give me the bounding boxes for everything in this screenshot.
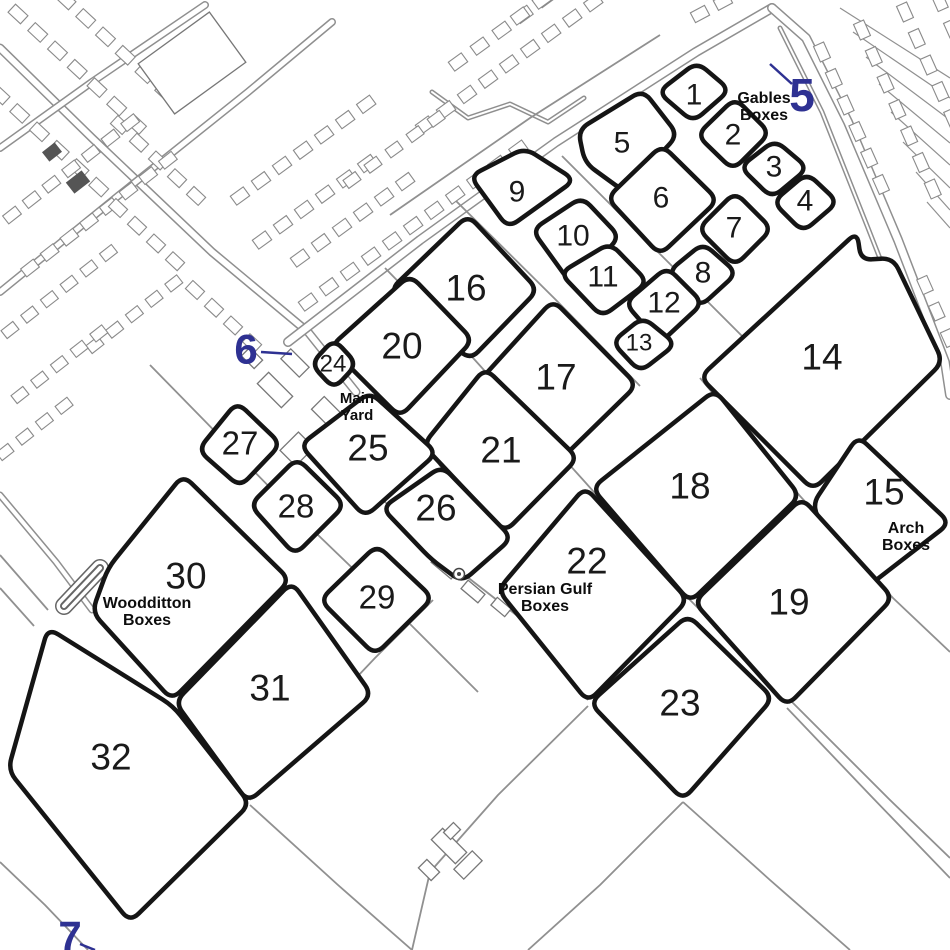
label-arch-boxes-line1: Arch (888, 520, 924, 537)
paddock-31-number: 31 (249, 668, 290, 709)
label-woodditton-boxes-line2: Boxes (123, 612, 171, 629)
paddock-21-number: 21 (480, 430, 521, 471)
label-arch-boxes-line2: Boxes (882, 537, 930, 554)
paddock-13-number: 13 (626, 330, 653, 357)
label-woodditton-boxes-line1: Woodditton (103, 595, 192, 612)
paddock-9-number: 9 (509, 176, 526, 209)
paddock-23-number: 23 (659, 683, 700, 724)
map-root: 1234567891011121314151617181920212223242… (0, 0, 950, 950)
blue-marker-6: 6 (234, 326, 257, 373)
paddock-15-number: 15 (863, 472, 904, 513)
paddock-1-number: 1 (686, 79, 703, 112)
paddock-27-number: 27 (222, 425, 259, 462)
label-arch-boxes: ArchBoxes (882, 520, 930, 554)
paddock-18-number: 18 (669, 466, 710, 507)
label-main-yard-line2: Yard (341, 407, 374, 424)
paddock-32-number: 32 (90, 737, 131, 778)
label-persian-gulf-boxes-line2: Boxes (521, 598, 569, 615)
paddock-6-number: 6 (653, 182, 670, 215)
paddock-19-number: 19 (768, 582, 809, 623)
label-main-yard: MainYard (340, 390, 374, 424)
paddock-26-number: 26 (415, 488, 456, 529)
paddock-29-number: 29 (359, 579, 396, 616)
label-gables-boxes: GablesBoxes (737, 90, 790, 124)
paddock-28-number: 28 (278, 488, 315, 525)
label-persian-gulf-boxes-line1: Persian Gulf (498, 581, 593, 598)
paddock-3-number: 3 (766, 151, 783, 184)
paddock-17-number: 17 (535, 357, 576, 398)
blue-marker-5: 5 (789, 69, 815, 121)
paddock-4-number: 4 (797, 185, 814, 218)
paddock-12-number: 12 (647, 287, 680, 320)
paddock-20-number: 20 (381, 326, 422, 367)
paddock-2-number: 2 (725, 119, 742, 152)
label-main-yard-line1: Main (340, 390, 374, 407)
paddock-8-number: 8 (695, 257, 712, 290)
blue-marker-7: 7 (58, 913, 81, 950)
paddock-25-number: 25 (347, 428, 388, 469)
paddock-7-number: 7 (726, 212, 743, 245)
paddock-14-number: 14 (801, 337, 842, 378)
paddock-16-number: 16 (445, 268, 486, 309)
paddock-10-number: 10 (556, 220, 589, 253)
map-symbol-dot (457, 572, 461, 576)
paddock-11-number: 11 (587, 261, 618, 294)
paddock-24-number: 24 (320, 351, 347, 378)
label-gables-boxes-line1: Gables (737, 90, 790, 107)
paddock-30-number: 30 (165, 556, 206, 597)
paddock-5-number: 5 (614, 127, 631, 160)
paddock-22-number: 22 (566, 541, 607, 582)
label-gables-boxes-line2: Boxes (740, 107, 788, 124)
map-canvas: 1234567891011121314151617181920212223242… (0, 0, 950, 950)
